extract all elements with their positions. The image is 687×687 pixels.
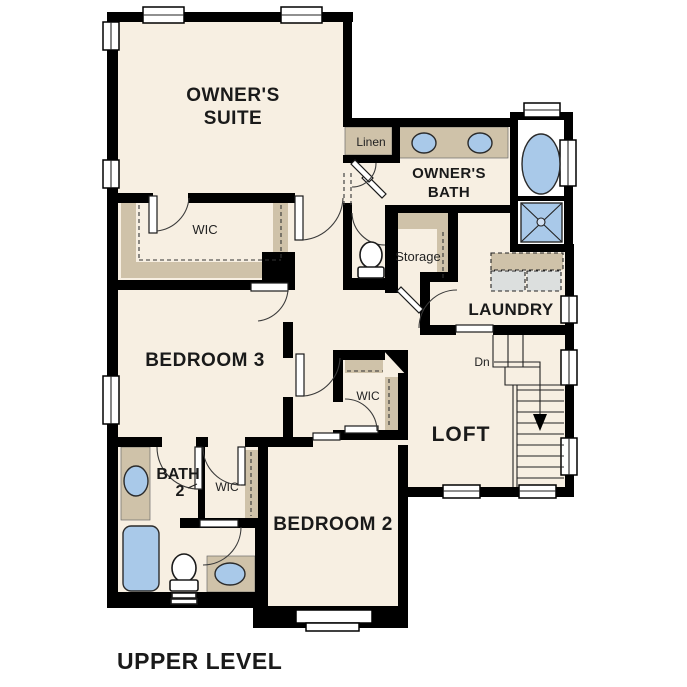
loft-label: LOFT [432,423,491,446]
floor-areas [112,17,568,628]
storage-label: Storage [395,249,441,264]
owners-bath-sink-right [468,133,492,153]
bath2-wic-label: WIC [215,480,239,494]
owners-bath-tub [522,134,560,194]
plan-title: UPPER LEVEL [117,648,282,674]
washer [491,271,525,291]
owners-bath-label-line1: OWNER'S [412,165,486,182]
owners-suite-label-line2: SUITE [204,108,262,129]
owner-wic-label: WIC [192,222,217,237]
bedroom3-label: BEDROOM 3 [145,350,265,371]
storage-shelf-top [398,213,448,229]
owners-bath-label-line2: BATH [428,184,470,201]
bath2-label-line1: BATH [156,466,199,483]
window [103,160,119,188]
bedroom2-label: BEDROOM 2 [273,514,393,535]
window [143,7,184,23]
stairs-dn-label: Dn [474,355,489,369]
owner-toilet [358,242,384,278]
floor-plan-page: OWNER'S SUITE WIC OWNER'S BATH Linen Sto… [0,0,687,687]
bedroom2-wic-label: WIC [356,389,380,403]
linen-label: Linen [356,135,385,149]
window [560,140,576,186]
laundry-appliances [491,253,563,291]
bedroom2-wic-shelf-right [385,377,398,430]
floor-plan-drawing: OWNER'S SUITE WIC OWNER'S BATH Linen Sto… [0,0,687,687]
window [281,7,322,23]
window [103,22,119,50]
owners-suite-label-line1: OWNER'S [186,85,280,106]
window [519,485,556,498]
window [103,376,119,424]
bath2-label-line2: 2 [176,483,185,500]
bath2-sink [124,466,148,496]
window [561,350,577,385]
bath2-tub [123,526,159,591]
owner-wic-shelf-bottom [121,262,273,278]
laundry-label: LAUNDRY [468,300,554,319]
owners-bath-sink-left [412,133,436,153]
dryer [527,271,561,291]
window [561,296,577,323]
window [443,485,480,498]
owners-bath-shower [521,203,562,242]
bath2-second-sink [215,563,245,585]
window [524,103,560,117]
